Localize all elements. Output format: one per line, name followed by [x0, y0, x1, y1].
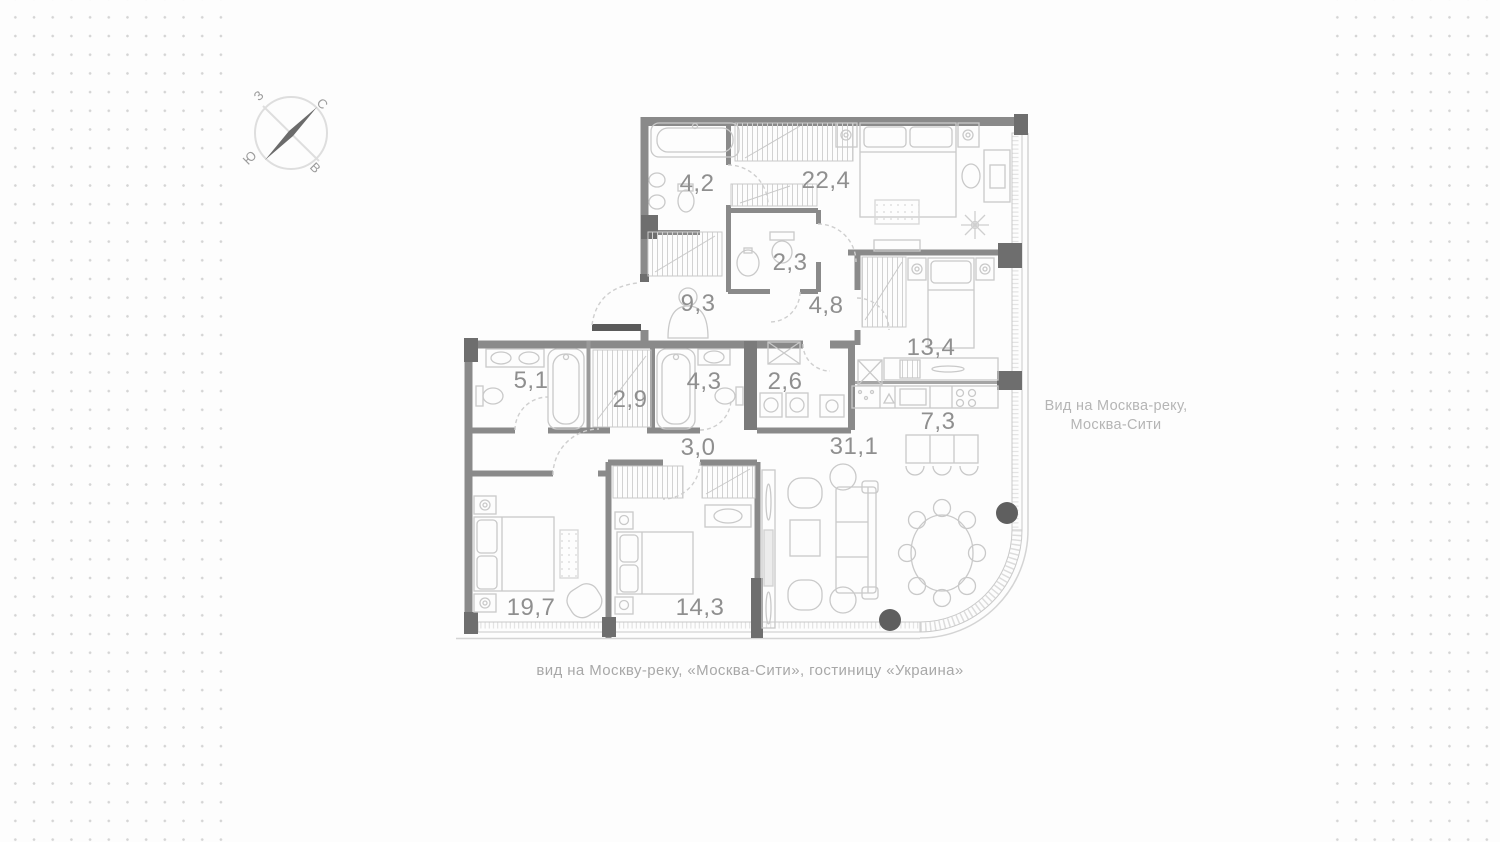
entry-door-leaf [592, 324, 641, 331]
sink-icon [737, 248, 759, 276]
room-label-bedroom-child: 13,4 [907, 334, 956, 361]
column [879, 609, 901, 631]
room-label-wardrobe: 2,9 [613, 386, 648, 413]
room-label-master-bedroom: 22,4 [802, 167, 851, 194]
room-label-entrance-hall: 9,3 [681, 290, 716, 317]
room-label-kitchen: 7,3 [921, 408, 956, 435]
sink-icon [649, 195, 665, 209]
sink-icon [649, 173, 665, 187]
laundry-sink-icon [820, 395, 844, 417]
kitchen-counter-top-icon [884, 358, 998, 380]
rug-icon [560, 530, 578, 578]
compass-west-label: З [251, 87, 267, 103]
room-label-inner-corridor: 3,0 [681, 434, 716, 461]
bathtub-icon [548, 349, 584, 429]
page: З С Ю В [0, 0, 1500, 842]
compass-north-label: С [314, 95, 331, 112]
entry-door-arc [592, 283, 637, 325]
room-label-bathroom-2: 5,1 [514, 367, 549, 394]
column [996, 502, 1018, 524]
armchair-icon [562, 579, 606, 622]
nightstand-icon [908, 258, 926, 280]
view-caption-right-line1: Вид на Москва-реку, [1036, 397, 1196, 416]
stove-icon [957, 390, 964, 397]
compass-south-label: Ю [240, 148, 260, 168]
dot-grid-right [1322, 0, 1500, 842]
view-caption-bottom: вид на Москву-реку, «Москва-Сити», гости… [452, 662, 1048, 679]
toilet-icon [476, 386, 503, 406]
sofa-icon [836, 481, 878, 599]
room-label-bedroom-2: 19,7 [507, 594, 556, 621]
washer-icon [760, 393, 782, 417]
stool-icon [933, 466, 951, 475]
kitchen-sink-icon [900, 389, 926, 405]
armchair-icon [788, 580, 822, 610]
nightstand-icon [958, 123, 979, 147]
dining-table-icon [899, 500, 986, 607]
room-label-laundry: 2,6 [768, 368, 803, 395]
vanity-desk-icon [962, 150, 1010, 202]
side-table-icon [830, 587, 856, 613]
sink-icon [698, 349, 730, 365]
nightstand-icon [976, 258, 994, 280]
dresser-tv-icon [705, 505, 751, 527]
floor-plan: 4,2 22,4 2,3 9,3 4,8 13,4 5,1 2,9 4,3 2,… [440, 95, 1060, 680]
nightstand-icon [615, 512, 633, 529]
room-label-bathroom-1: 4,2 [680, 170, 715, 197]
compass-east-label: В [307, 159, 324, 176]
room-label-corridor: 4,8 [809, 292, 844, 319]
nightstand-icon [474, 496, 496, 514]
compass-icon: З С Ю В [235, 75, 355, 185]
bathtub-icon [651, 123, 739, 157]
room-label-wc: 2,3 [773, 249, 808, 276]
side-table-icon [830, 464, 856, 490]
kitchen-island-icon [906, 435, 978, 475]
nightstand-icon [474, 594, 496, 612]
tv-console-icon [762, 470, 775, 628]
armchair-icon [788, 478, 822, 508]
room-label-bathroom-3: 4,3 [687, 368, 722, 395]
double-bed-icon [617, 532, 693, 594]
dishwasher-icon [884, 394, 894, 403]
dryer-icon [786, 393, 808, 417]
plant-icon [961, 211, 989, 239]
room-label-living-room: 31,1 [830, 433, 879, 460]
coffee-table-icon [790, 520, 820, 556]
nightstand-icon [615, 597, 633, 614]
view-caption-right: Вид на Москва-реку, Москва-Сити [1036, 397, 1196, 435]
kitchen-counter-icon [852, 386, 998, 408]
double-bed-icon [474, 517, 554, 591]
bench-icon [874, 240, 920, 251]
stool-icon [960, 466, 978, 475]
stool-icon [906, 466, 924, 475]
view-caption-right-line2: Москва-Сити [1036, 416, 1196, 435]
rug-icon [875, 200, 919, 224]
dot-grid-left [0, 0, 226, 842]
double-sink-icon [486, 349, 544, 367]
room-label-bedroom-3: 14,3 [676, 594, 725, 621]
